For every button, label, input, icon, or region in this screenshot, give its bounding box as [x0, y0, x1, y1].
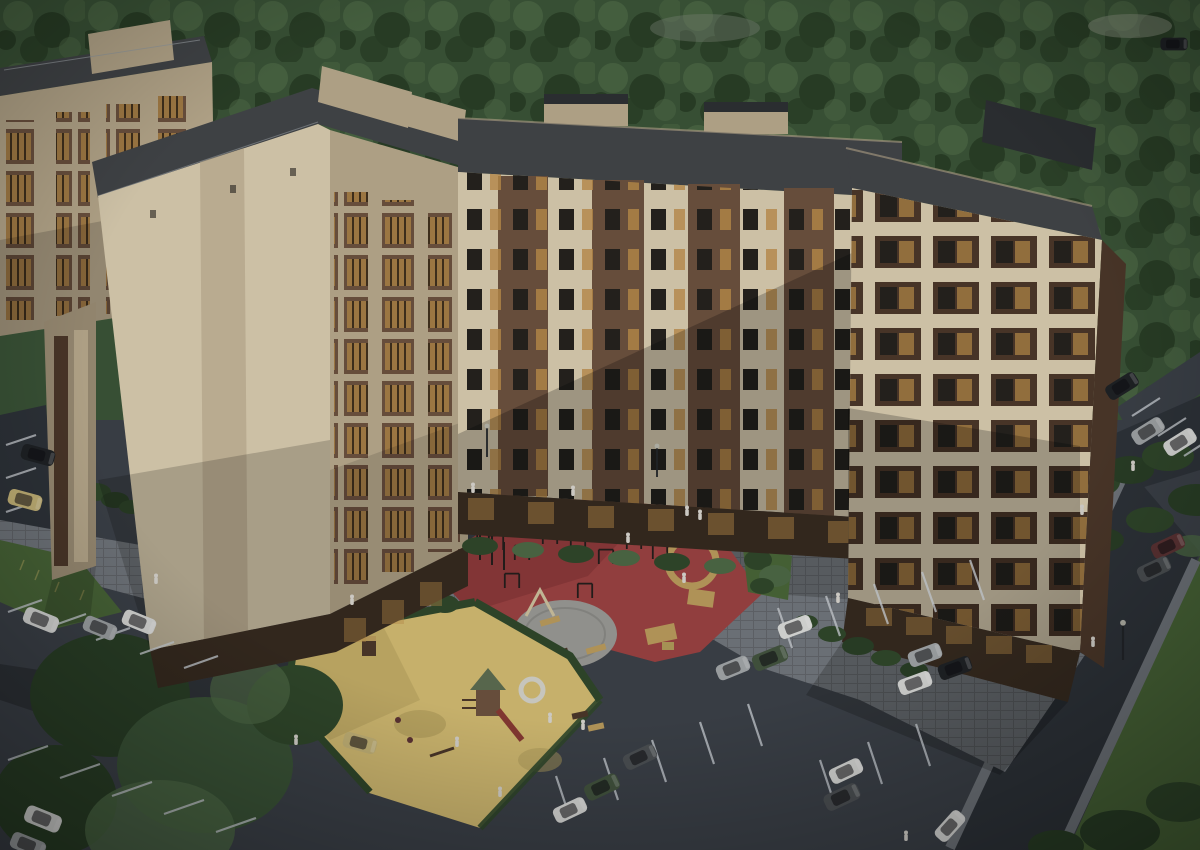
architectural-render-image: [0, 0, 1200, 850]
render-canvas: [0, 0, 1200, 850]
vignette-overlay: [0, 0, 1200, 850]
